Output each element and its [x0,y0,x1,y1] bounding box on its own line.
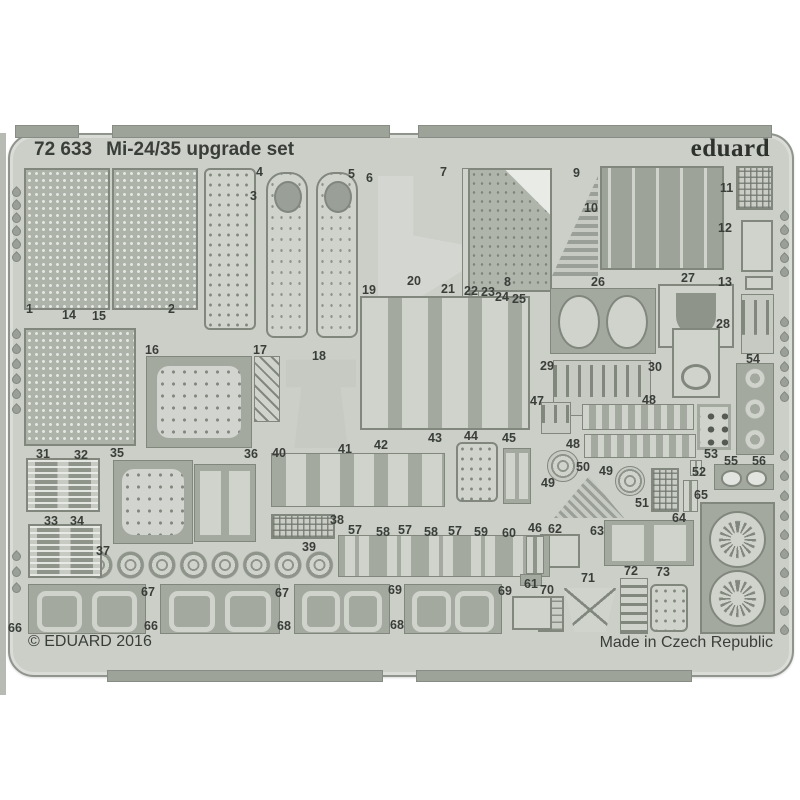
part-number-label: 73 [656,566,670,579]
part-number-label: 10 [584,202,598,215]
part-number-label: 57 [348,524,362,537]
part-shape [604,520,694,566]
part-number-label: 48 [566,438,580,451]
part-shape [526,536,544,574]
part-shape [113,460,193,544]
part-number-label: 7 [440,166,447,179]
part-number-label: 57 [398,524,412,537]
part-number-label: 18 [312,350,326,363]
part-number-label: 72 [624,565,638,578]
part-number-label: 66 [144,620,158,633]
part-number-label: 15 [92,310,106,323]
part-number-label: 4 [256,166,263,179]
part-number-label: 28 [716,318,730,331]
fret-title: 72 633 Mi-24/35 upgrade set [34,139,294,161]
part-shape [160,584,280,634]
part-number-label: 69 [498,585,512,598]
part-number-label: 56 [752,455,766,468]
part-number-label: 33 [44,515,58,528]
part-number-label: 71 [581,572,595,585]
part-shape [456,442,498,502]
part-shape [709,570,766,627]
part-number-label: 26 [591,276,605,289]
part-shape [204,168,256,330]
part-shape [271,514,335,539]
part-shape [584,434,696,458]
part-number-label: 60 [502,527,516,540]
part-number-label: 47 [530,395,544,408]
part-number-label: 49 [541,477,555,490]
part-number-label: 59 [474,526,488,539]
sprue-tab [416,670,692,682]
part-shape [24,168,110,310]
part-number-label: 21 [441,283,455,296]
sprue-tab [418,125,772,138]
part-shape [741,220,773,272]
part-shape [468,168,552,292]
part-number-label: 40 [272,447,286,460]
part-shape [24,328,136,446]
part-number-label: 57 [448,525,462,538]
part-number-label: 6 [366,172,373,185]
part-shape [28,584,146,634]
set-number: 72 633 [34,139,92,161]
part-number-label: 23 [481,286,495,299]
part-number-label: 17 [253,344,267,357]
part-shape [194,464,256,542]
part-shape [672,328,720,398]
part-shape [84,548,336,582]
part-number-label: 68 [277,620,291,633]
part-number-label: 53 [704,448,718,461]
part-number-label: 12 [718,222,732,235]
part-shape [651,468,679,512]
part-shape [697,404,731,450]
part-number-label: 39 [302,541,316,554]
part-number-label: 58 [424,526,438,539]
part-shape [582,404,694,430]
part-shape [266,172,308,338]
part-number-label: 30 [648,361,662,374]
part-shape [615,466,645,496]
origin-text: Made in Czech Republic [600,634,773,652]
part-shape [620,578,648,634]
part-number-label: 44 [464,430,478,443]
part-number-label: 52 [692,466,706,479]
part-shape [294,584,390,634]
part-number-label: 62 [548,523,562,536]
part-shape [112,168,198,310]
part-number-label: 58 [376,526,390,539]
part-shape [338,535,550,577]
part-shape [741,294,774,354]
part-number-label: 49 [599,465,613,478]
part-number-label: 16 [145,344,159,357]
part-number-label: 69 [388,584,402,597]
sprue-tab [15,125,79,138]
part-number-label: 63 [590,525,604,538]
part-number-label: 66 [8,622,22,635]
part-shape [512,596,552,630]
part-number-label: 22 [464,285,478,298]
photo-of-pe-fret: 72 633 Mi-24/35 upgrade set eduard © EDU… [0,0,800,800]
part-shape [745,276,773,290]
part-number-label: 11 [720,182,733,195]
copyright-text: © EDUARD 2016 [28,633,152,651]
part-number-label: 1 [26,303,33,316]
part-number-label: 67 [275,587,289,600]
part-number-label: 54 [746,353,760,366]
photo-left-edge [0,133,6,695]
part-number-label: 51 [635,497,649,510]
part-number-label: 3 [250,190,257,203]
part-number-label: 37 [96,545,110,558]
part-number-label: 36 [244,448,258,461]
part-number-label: 38 [330,514,344,527]
part-number-label: 35 [110,447,124,460]
sprue-tab [112,125,390,138]
part-shape [550,288,656,354]
part-number-label: 61 [524,578,538,591]
part-number-label: 41 [338,443,352,456]
part-number-label: 5 [348,168,355,181]
part-shape [271,453,445,507]
part-number-label: 50 [576,461,590,474]
part-number-label: 27 [681,272,695,285]
part-shape [28,524,102,578]
part-number-label: 29 [540,360,554,373]
part-number-label: 2 [168,303,175,316]
part-shape [404,584,502,634]
part-shape [736,363,774,455]
part-number-label: 8 [504,276,511,289]
part-number-label: 70 [540,584,554,597]
part-number-label: 24 [495,291,509,304]
part-number-label: 45 [502,432,516,445]
part-number-label: 32 [74,449,88,462]
part-number-label: 43 [428,432,442,445]
part-shape [541,402,571,434]
sprue-tab [107,670,383,682]
part-shape [26,458,100,512]
part-shape [709,511,766,568]
part-shape [600,166,724,270]
part-shape [736,166,773,210]
part-number-label: 42 [374,439,388,452]
part-shape [316,172,358,338]
part-number-label: 34 [70,515,84,528]
part-number-label: 67 [141,586,155,599]
part-shape [254,356,280,422]
part-number-label: 48 [642,394,656,407]
part-number-label: 20 [407,275,421,288]
part-number-label: 46 [528,522,542,535]
part-shape [146,356,252,448]
part-number-label: 14 [62,309,76,322]
brand-logo: eduard [691,135,770,163]
part-number-label: 65 [694,489,708,502]
part-number-label: 31 [36,448,50,461]
part-shape [650,584,688,632]
part-shape [360,296,530,430]
part-number-label: 55 [724,455,738,468]
part-number-label: 13 [718,276,732,289]
part-number-label: 19 [362,284,376,297]
part-number-label: 68 [390,619,404,632]
part-number-label: 64 [672,512,686,525]
part-number-label: 25 [512,293,526,306]
part-shape [503,448,531,504]
part-number-label: 9 [573,167,580,180]
set-name: Mi-24/35 upgrade set [106,139,294,161]
